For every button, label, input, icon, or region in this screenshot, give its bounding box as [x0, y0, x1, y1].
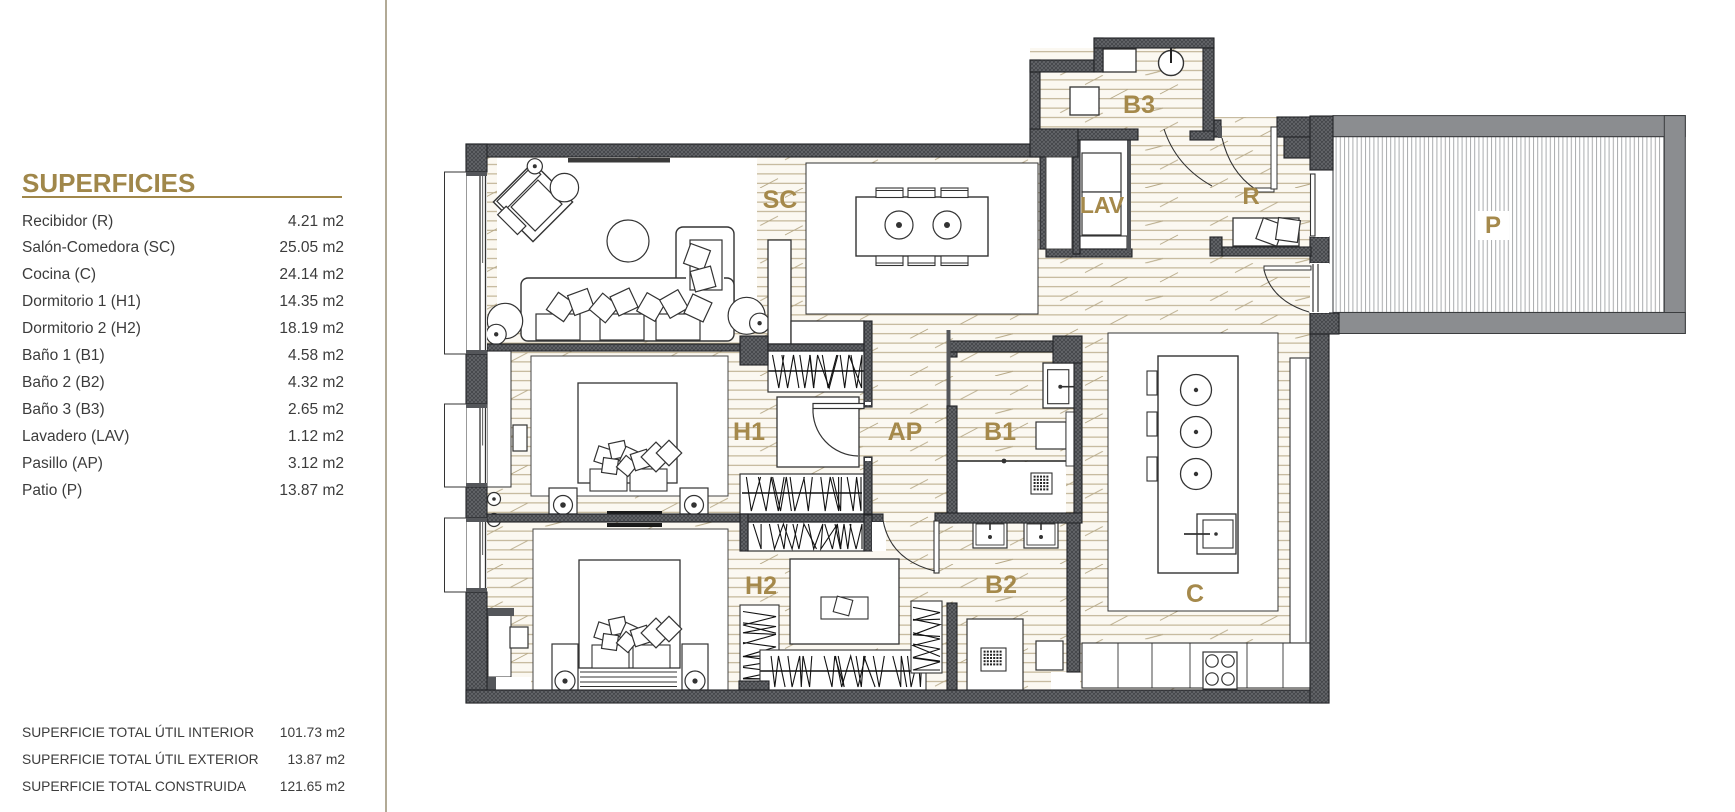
svg-text:H2: H2 [745, 572, 777, 600]
svg-text:B1: B1 [984, 418, 1016, 446]
svg-text:SC: SC [763, 186, 798, 214]
svg-text:H1: H1 [733, 418, 765, 446]
svg-text:B2: B2 [985, 571, 1017, 599]
svg-text:P: P [1485, 212, 1501, 239]
svg-text:C: C [1186, 580, 1204, 608]
svg-text:B3: B3 [1123, 91, 1155, 119]
svg-text:LAV: LAV [1080, 192, 1125, 218]
svg-text:R: R [1242, 183, 1259, 210]
svg-text:AP: AP [888, 418, 923, 446]
